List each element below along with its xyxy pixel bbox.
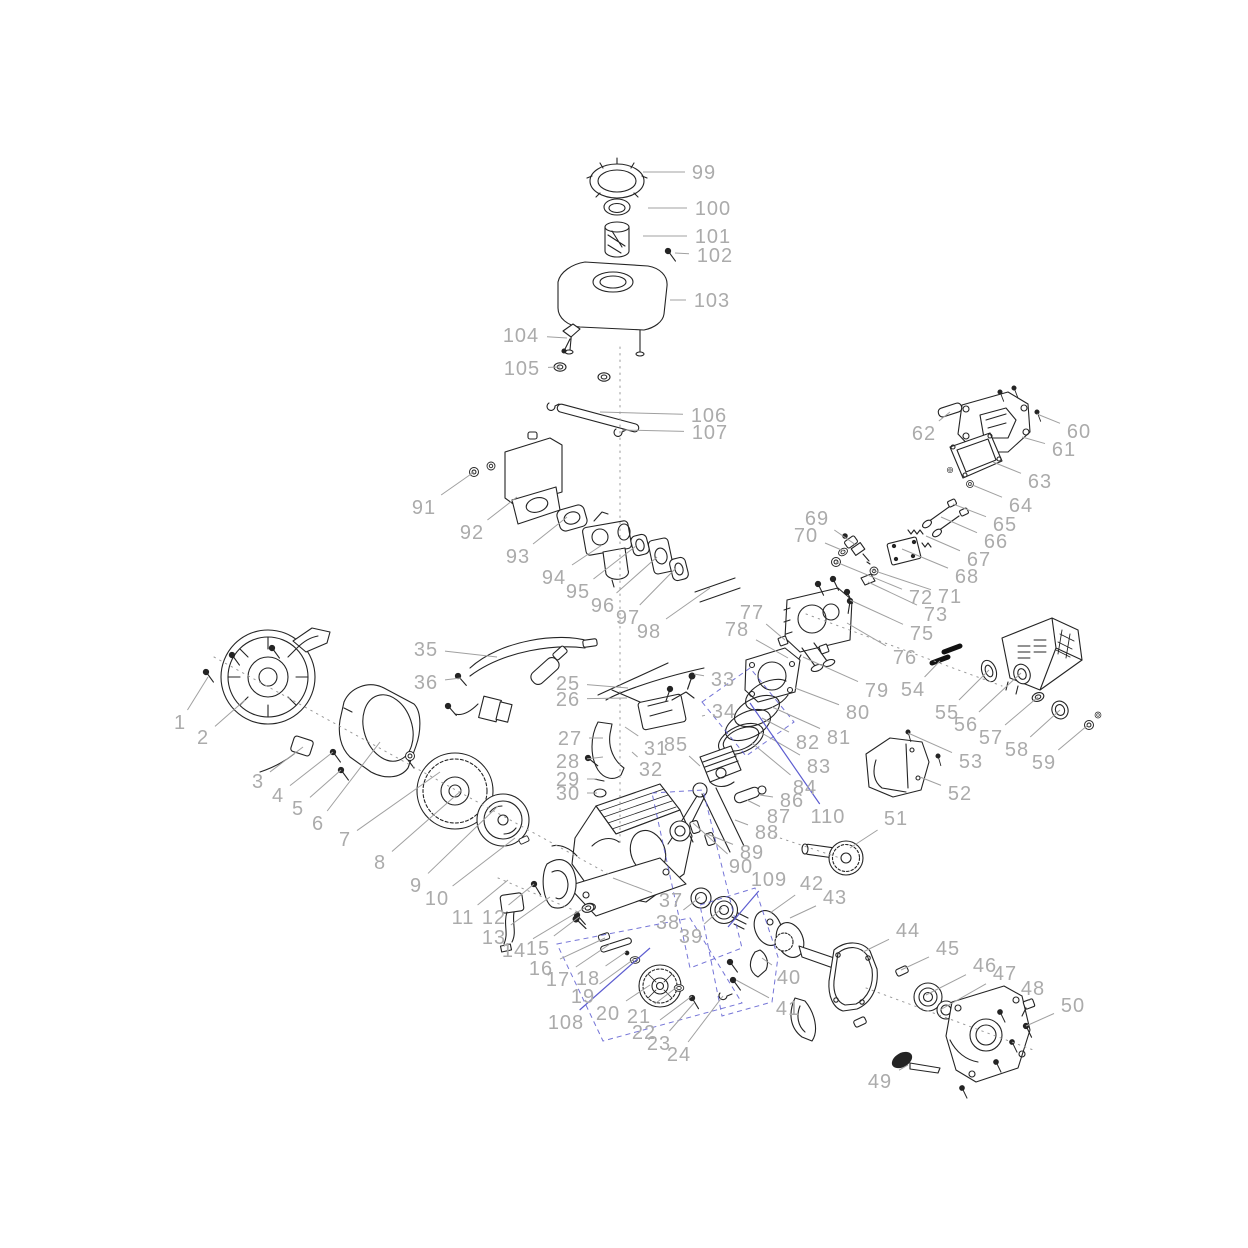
- part-label-40: 40: [777, 967, 801, 989]
- part-label-49: 49: [868, 1071, 892, 1093]
- part-label-47: 47: [993, 963, 1017, 985]
- camshaft: [802, 841, 863, 875]
- fuel-filter-cup: [605, 222, 629, 257]
- bolt-41a: [725, 959, 741, 973]
- carburetor: [582, 512, 632, 587]
- intake-gasket: [669, 556, 690, 581]
- part-label-107: 107: [692, 422, 728, 444]
- part-label-110: 110: [811, 806, 846, 828]
- part-label-83: 83: [807, 756, 831, 778]
- breather-pin-62: [937, 402, 963, 418]
- plate-bolt-33a: [685, 673, 697, 689]
- part-label-68: 68: [955, 566, 979, 588]
- valve-caps-65: [947, 499, 969, 517]
- part-label-96: 96: [591, 595, 615, 617]
- part-label-81: 81: [827, 727, 851, 749]
- nut-64b: [947, 467, 953, 473]
- case-gasket-44: [829, 943, 877, 1011]
- part-label-12: 12: [482, 907, 506, 929]
- fan-cover: [339, 685, 421, 777]
- part-label-100: 100: [695, 198, 731, 220]
- control-plate: [612, 690, 694, 730]
- nut-59b: [1095, 712, 1101, 718]
- recoil-starter: [221, 628, 330, 724]
- bearing-39: [711, 897, 738, 924]
- cap-gasket-ring: [604, 199, 630, 215]
- part-label-5: 5: [292, 798, 304, 820]
- part-label-1: 1: [174, 712, 186, 734]
- coil-screw-b: [444, 703, 460, 716]
- head-screw-b: [827, 575, 843, 590]
- part-label-36: 36: [414, 672, 438, 694]
- part-label-10: 10: [425, 888, 449, 910]
- part-label-2: 2: [197, 727, 209, 749]
- nut-59: [1085, 721, 1094, 730]
- part-label-92: 92: [460, 522, 484, 544]
- part-label-37: 37: [659, 890, 683, 912]
- crankcase-cover: [946, 986, 1030, 1082]
- part-label-63: 63: [1028, 471, 1052, 493]
- part-label-70: 70: [794, 525, 818, 547]
- exploded-parts-diagram: 1234567891011121314151617181920212223242…: [0, 0, 1248, 1248]
- part-label-44: 44: [896, 920, 920, 942]
- piston-pin: [733, 786, 761, 804]
- head-studs-54: [932, 646, 960, 663]
- part-label-76: 76: [893, 647, 917, 669]
- part-label-20: 20: [596, 1003, 620, 1025]
- part-label-50: 50: [1061, 995, 1085, 1017]
- part-label-95: 95: [566, 581, 590, 603]
- part-label-108: 108: [548, 1012, 584, 1034]
- part-label-61: 61: [1052, 439, 1076, 461]
- oil-dipstick: [889, 1048, 940, 1073]
- diagram-artwork: 1234567891011121314151617181920212223242…: [0, 0, 1248, 1248]
- flywheel-nut: [406, 752, 415, 761]
- guide-plate-68: [887, 537, 921, 566]
- fuel-tank-cap: [587, 158, 647, 198]
- part-label-80: 80: [846, 702, 870, 724]
- part-label-17: 17: [546, 969, 570, 991]
- dowel-pin-45b: [853, 1016, 867, 1027]
- part-label-7: 7: [339, 829, 351, 851]
- part-label-53: 53: [959, 751, 983, 773]
- part-label-103: 103: [694, 290, 730, 312]
- part-label-82: 82: [796, 732, 820, 754]
- governor-rod-spring: [598, 663, 704, 700]
- part-label-79: 79: [865, 680, 889, 702]
- part-label-9: 9: [410, 875, 422, 897]
- part-label-98: 98: [637, 621, 661, 643]
- carb-gasket-b: [630, 533, 650, 556]
- part-label-94: 94: [542, 567, 566, 589]
- part-label-109: 109: [751, 869, 787, 891]
- air-filter: [505, 432, 562, 524]
- part-label-48: 48: [1021, 978, 1045, 1000]
- part-label-32: 32: [639, 759, 663, 781]
- part-label-88: 88: [755, 822, 779, 844]
- cover-screw-1: [328, 749, 344, 763]
- part-label-56: 56: [954, 714, 978, 736]
- housing-screw-53b: [933, 753, 946, 766]
- part-label-6: 6: [312, 813, 324, 835]
- part-label-54: 54: [901, 679, 925, 701]
- part-label-24: 24: [667, 1044, 691, 1066]
- part-label-11: 11: [452, 907, 475, 929]
- part-label-45: 45: [936, 938, 960, 960]
- head-gasket: [745, 648, 800, 702]
- part-label-91: 91: [412, 497, 436, 519]
- cover-bolt-d: [957, 1085, 971, 1098]
- part-label-42: 42: [800, 873, 824, 895]
- piston: [700, 746, 741, 787]
- governor-arm-40: [750, 950, 767, 977]
- part-label-99: 99: [692, 162, 716, 184]
- stop-switch: [260, 735, 314, 772]
- part-label-78: 78: [725, 619, 749, 641]
- filter-nut-2: [487, 462, 495, 470]
- part-label-59: 59: [1032, 752, 1056, 774]
- part-label-62: 62: [912, 423, 936, 445]
- fuel-tank: [558, 262, 667, 356]
- part-label-51: 51: [884, 808, 908, 830]
- part-label-58: 58: [1005, 739, 1029, 761]
- plug-seal-70: [837, 547, 849, 558]
- module-screw-12: [529, 880, 545, 894]
- part-label-4: 4: [272, 785, 284, 807]
- part-label-57: 57: [979, 727, 1003, 749]
- part-label-41: 41: [776, 998, 800, 1020]
- part-label-8: 8: [374, 852, 386, 874]
- part-label-85: 85: [664, 734, 688, 756]
- tank-screw: [663, 248, 679, 262]
- starter-screw-1: [201, 669, 217, 683]
- part-label-93: 93: [506, 546, 530, 568]
- part-label-33: 33: [711, 669, 735, 691]
- control-bracket: [592, 722, 624, 778]
- fuel-line: [547, 403, 640, 436]
- exhaust-gasket-55: [979, 658, 1000, 683]
- muffler: [1002, 618, 1082, 694]
- part-label-30: 30: [556, 783, 580, 805]
- cover-screw-2: [336, 767, 352, 781]
- intake-studs: [695, 578, 740, 602]
- part-label-90: 90: [729, 856, 753, 878]
- part-label-26: 26: [556, 689, 580, 711]
- pin-circlip: [758, 786, 766, 794]
- part-label-34: 34: [712, 701, 736, 723]
- tank-washer: [598, 373, 610, 381]
- part-label-104: 104: [503, 325, 539, 347]
- part-label-43: 43: [823, 887, 847, 909]
- blower-housing: [866, 738, 929, 797]
- part-label-52: 52: [948, 783, 972, 805]
- part-label-39: 39: [679, 926, 703, 948]
- part-label-14: 14: [502, 940, 526, 962]
- starter-cup: [543, 860, 576, 908]
- part-label-3: 3: [252, 771, 264, 793]
- part-label-35: 35: [414, 639, 438, 661]
- part-label-27: 27: [558, 728, 582, 750]
- part-label-102: 102: [697, 245, 733, 267]
- part-label-19: 19: [571, 986, 595, 1008]
- part-label-38: 38: [656, 912, 680, 934]
- part-label-105: 105: [504, 358, 540, 380]
- part-label-15: 15: [526, 938, 550, 960]
- bolt-22: [687, 994, 703, 1008]
- part-label-75: 75: [910, 623, 934, 645]
